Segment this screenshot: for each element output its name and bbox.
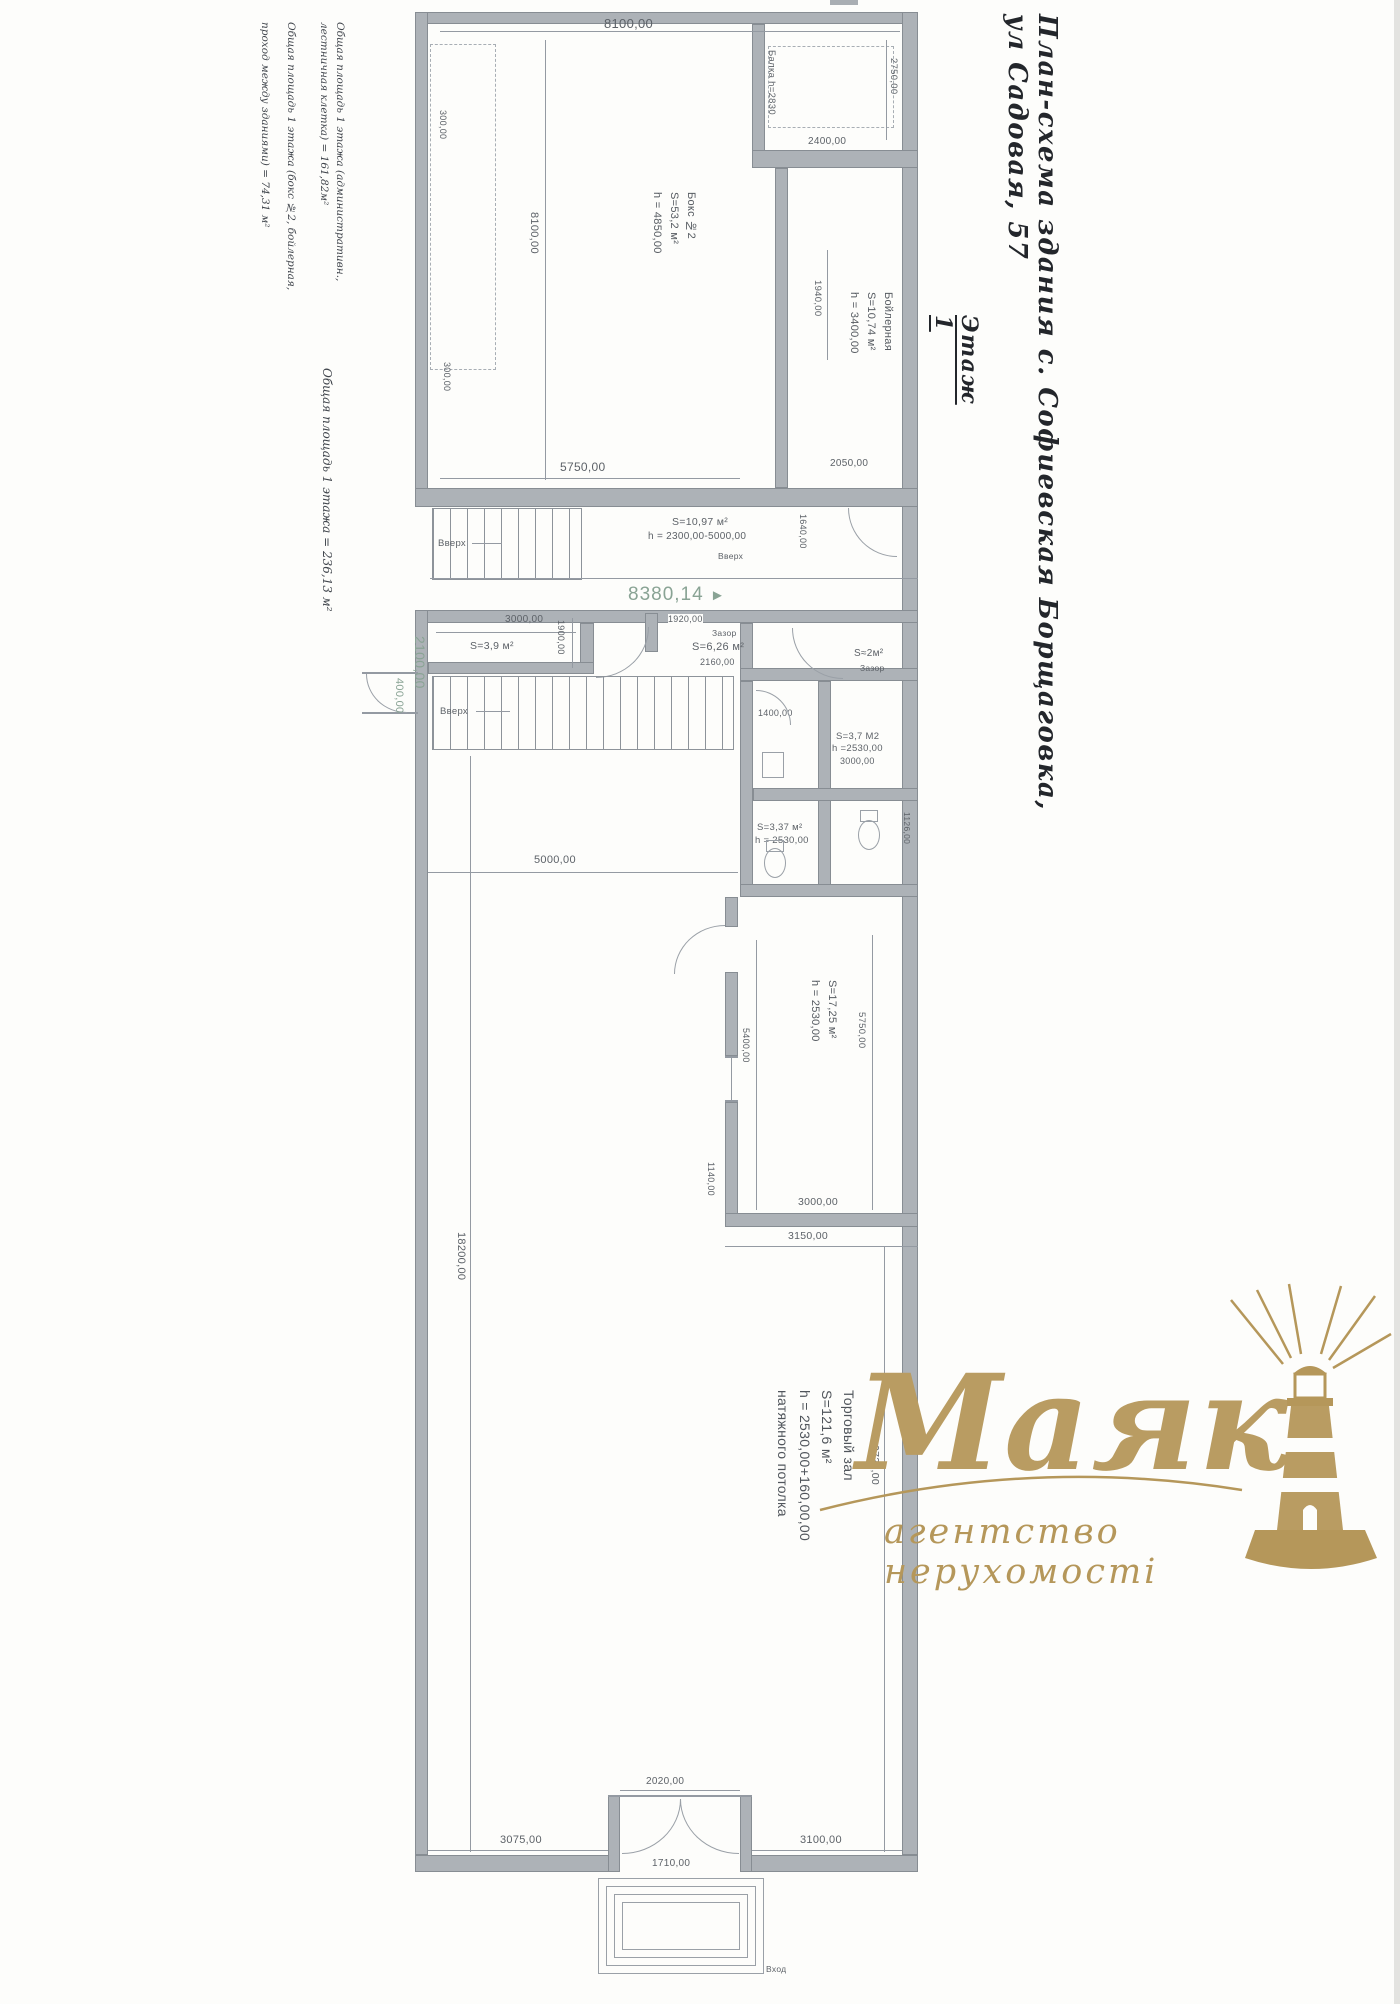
dimension-line xyxy=(470,756,471,1852)
dimension-label: 5750,00 xyxy=(856,1012,867,1048)
dimension-label: 300,00 xyxy=(442,362,452,391)
room-label-s1725: S=17,25 м² h = 2530,00 xyxy=(806,980,840,1042)
wall-segment xyxy=(725,1102,738,1214)
room-height: h = 2530,00 xyxy=(806,980,823,1042)
dimension-label: 8100,00 xyxy=(528,212,540,254)
wall-segment xyxy=(415,610,918,623)
dimension-line xyxy=(440,478,740,479)
wall-segment xyxy=(725,1213,918,1227)
room-area: S=17,25 м² xyxy=(823,980,840,1042)
dimension-label: 2020,00 xyxy=(646,1776,684,1787)
lintel-line xyxy=(608,1795,752,1797)
floor-label: Этаж 1 xyxy=(930,315,982,415)
room-name: Бойлерная xyxy=(879,292,896,354)
room-area: S=3,7 М2 xyxy=(836,731,879,742)
area-note-boks: Общая площадь 1 этажа (бокс №2, бойлерна… xyxy=(252,22,304,290)
dimension-label: 1710,00 xyxy=(652,1858,690,1869)
dimension-line xyxy=(440,31,900,32)
room-area: S=10,97 м² xyxy=(672,516,728,528)
window-line xyxy=(731,1058,732,1102)
area-note-line: проход между зданиями) = 74,31 м² xyxy=(252,22,278,290)
toilet-tank xyxy=(860,810,878,822)
dimension-line xyxy=(428,1850,608,1851)
dimension-label: 1920,00 xyxy=(668,614,703,624)
dimension-label: 18200,00 xyxy=(455,1232,467,1280)
dimension-line xyxy=(752,1850,902,1851)
wall-segment xyxy=(752,24,765,152)
wall-segment xyxy=(740,884,918,897)
room-area: S=3,37 м² xyxy=(757,822,802,833)
door-arc xyxy=(680,1799,739,1854)
wall-segment xyxy=(725,972,738,1056)
dimension-label: 2050,00 xyxy=(830,458,868,469)
dimension-label: 2750,00 xyxy=(888,58,899,94)
toilet-fixture xyxy=(764,848,786,878)
gap-label: Зазор xyxy=(860,663,885,673)
arrow-right-icon: ► xyxy=(710,587,726,604)
room-label-boks: Бокс №2 S=53,2 м² h = 4850,00 xyxy=(648,192,699,254)
room-height: h = 4850,00 xyxy=(648,192,665,254)
door-arc xyxy=(848,508,897,557)
wall-segment xyxy=(415,610,428,1855)
dimension-line xyxy=(436,632,576,633)
scan-mark xyxy=(830,0,858,5)
drawing-line xyxy=(430,578,918,579)
entry-step xyxy=(622,1902,740,1950)
stairs-direction-label: Вверх xyxy=(440,706,468,717)
scanned-floor-plan-page: План-схема здания с. Софиевская Борщагов… xyxy=(0,0,1400,2004)
wall-segment xyxy=(608,1795,620,1872)
dimension-label: 3075,00 xyxy=(500,1834,542,1846)
dimension-label: 5000,00 xyxy=(534,854,576,866)
dimension-line xyxy=(886,40,887,140)
dimension-label: 5750,00 xyxy=(560,460,605,474)
room-height: h =2530,00 xyxy=(832,743,883,754)
sink-fixture xyxy=(762,752,784,778)
dimension-line xyxy=(756,940,757,1210)
dimension-label: 2100,00 xyxy=(412,636,428,689)
stairs-arrow xyxy=(476,711,510,712)
door-arc xyxy=(596,627,649,678)
area-note-admin: Общая площадь 1 этажа (административн., … xyxy=(316,22,348,281)
room-area: S=3,9 м² xyxy=(470,640,514,652)
dimension-label: 1940,00 xyxy=(812,280,823,316)
toilet-tank xyxy=(766,840,784,852)
dimension-label: 1140,00 xyxy=(706,1162,716,1196)
scan-edge-shadow xyxy=(1394,0,1400,2004)
stairs-arrow xyxy=(472,543,502,544)
dimension-line xyxy=(725,1246,918,1247)
dimension-line xyxy=(872,935,873,1210)
room-area: S=10,74 м² xyxy=(862,292,879,354)
dimension-line xyxy=(545,40,546,480)
door-arc xyxy=(756,690,791,725)
wall-segment xyxy=(753,788,918,801)
passage-annotation: 8380,14 ► xyxy=(628,584,726,606)
room-height: h = 2300,00-5000,00 xyxy=(648,531,746,542)
passage-length: 8380,14 xyxy=(628,584,704,605)
room-label-boiler: Бойлерная S=10,74 м² h = 3400,00 xyxy=(845,292,896,354)
wall-segment xyxy=(415,1855,620,1872)
dimension-label: 400,00 xyxy=(393,678,405,713)
gap-label: Зазор xyxy=(712,628,737,638)
wall-segment xyxy=(740,1795,752,1872)
beam-dashed-outline xyxy=(768,46,894,128)
wall-segment xyxy=(415,12,918,24)
agency-tagline: агентство нерухомості xyxy=(884,1512,1400,1592)
dimension-label: 3150,00 xyxy=(788,1230,828,1242)
room-height: h = 3400,00 xyxy=(845,292,862,354)
wall-segment xyxy=(775,168,788,488)
dimension-line xyxy=(620,1790,740,1791)
area-note-line: лестничная клетка) = 161,82м² xyxy=(316,22,332,281)
wall-segment xyxy=(740,1855,918,1872)
room-area: S=53,2 м² xyxy=(665,192,682,254)
stairs-direction-label: Вверх xyxy=(438,538,466,549)
dimension-line xyxy=(572,618,573,668)
beam-label: Балка h=2830 xyxy=(766,50,777,115)
dimension-label: 3000,00 xyxy=(798,1196,838,1208)
dimension-label: 1900,00 xyxy=(556,620,566,655)
wall-segment xyxy=(415,488,918,507)
dimension-label: 8100,00 xyxy=(604,16,653,31)
dimension-label: 1640,00 xyxy=(798,514,808,549)
room-name: Бокс №2 xyxy=(682,192,699,254)
dimension-label: 300,00 xyxy=(438,110,448,139)
area-note-line: Общая площадь 1 этажа (административн., xyxy=(332,22,348,281)
door-arc xyxy=(674,925,725,974)
room-area: S=6,26 м² xyxy=(692,641,744,653)
door-arc xyxy=(622,1799,681,1854)
area-note-line: Общая площадь 1 этажа (бокс №2, бойлерна… xyxy=(278,22,304,290)
dimension-line xyxy=(428,872,738,873)
room-note: натяжного потолка xyxy=(772,1390,794,1541)
dimension-label: 2400,00 xyxy=(808,136,846,147)
area-note-total: Общая площадь 1 этажа = 236,13 м² xyxy=(320,368,334,612)
dimension-label: 1126,00 xyxy=(902,812,912,844)
wall-segment xyxy=(415,12,428,490)
dimension-label: 3100,00 xyxy=(800,1834,842,1846)
room-height: h = 2530,00+160,00,00 xyxy=(794,1390,816,1541)
dimension-label: 3000,00 xyxy=(840,756,875,766)
toilet-fixture xyxy=(858,820,880,850)
page-title: План-схема здания с. Софиевская Борщагов… xyxy=(1002,14,1062,854)
platform-dashed-outline xyxy=(430,44,496,370)
room-area: S≈2м² xyxy=(854,648,883,659)
dimension-label: 3000,00 xyxy=(505,614,543,625)
wall-segment xyxy=(740,681,753,897)
porch-line xyxy=(362,712,418,714)
wall-segment xyxy=(428,662,594,674)
wall-segment xyxy=(725,897,738,927)
wall-segment xyxy=(752,150,918,168)
entry-label: Вход xyxy=(766,1964,786,1974)
dimension-label: 2160,00 xyxy=(700,657,735,667)
stairs xyxy=(432,676,734,750)
swoosh-underline xyxy=(816,1446,1246,1518)
dimension-line xyxy=(827,250,828,360)
dimension-label: 5400,00 xyxy=(741,1028,751,1063)
stairs-direction-label: Вверх xyxy=(718,551,743,561)
